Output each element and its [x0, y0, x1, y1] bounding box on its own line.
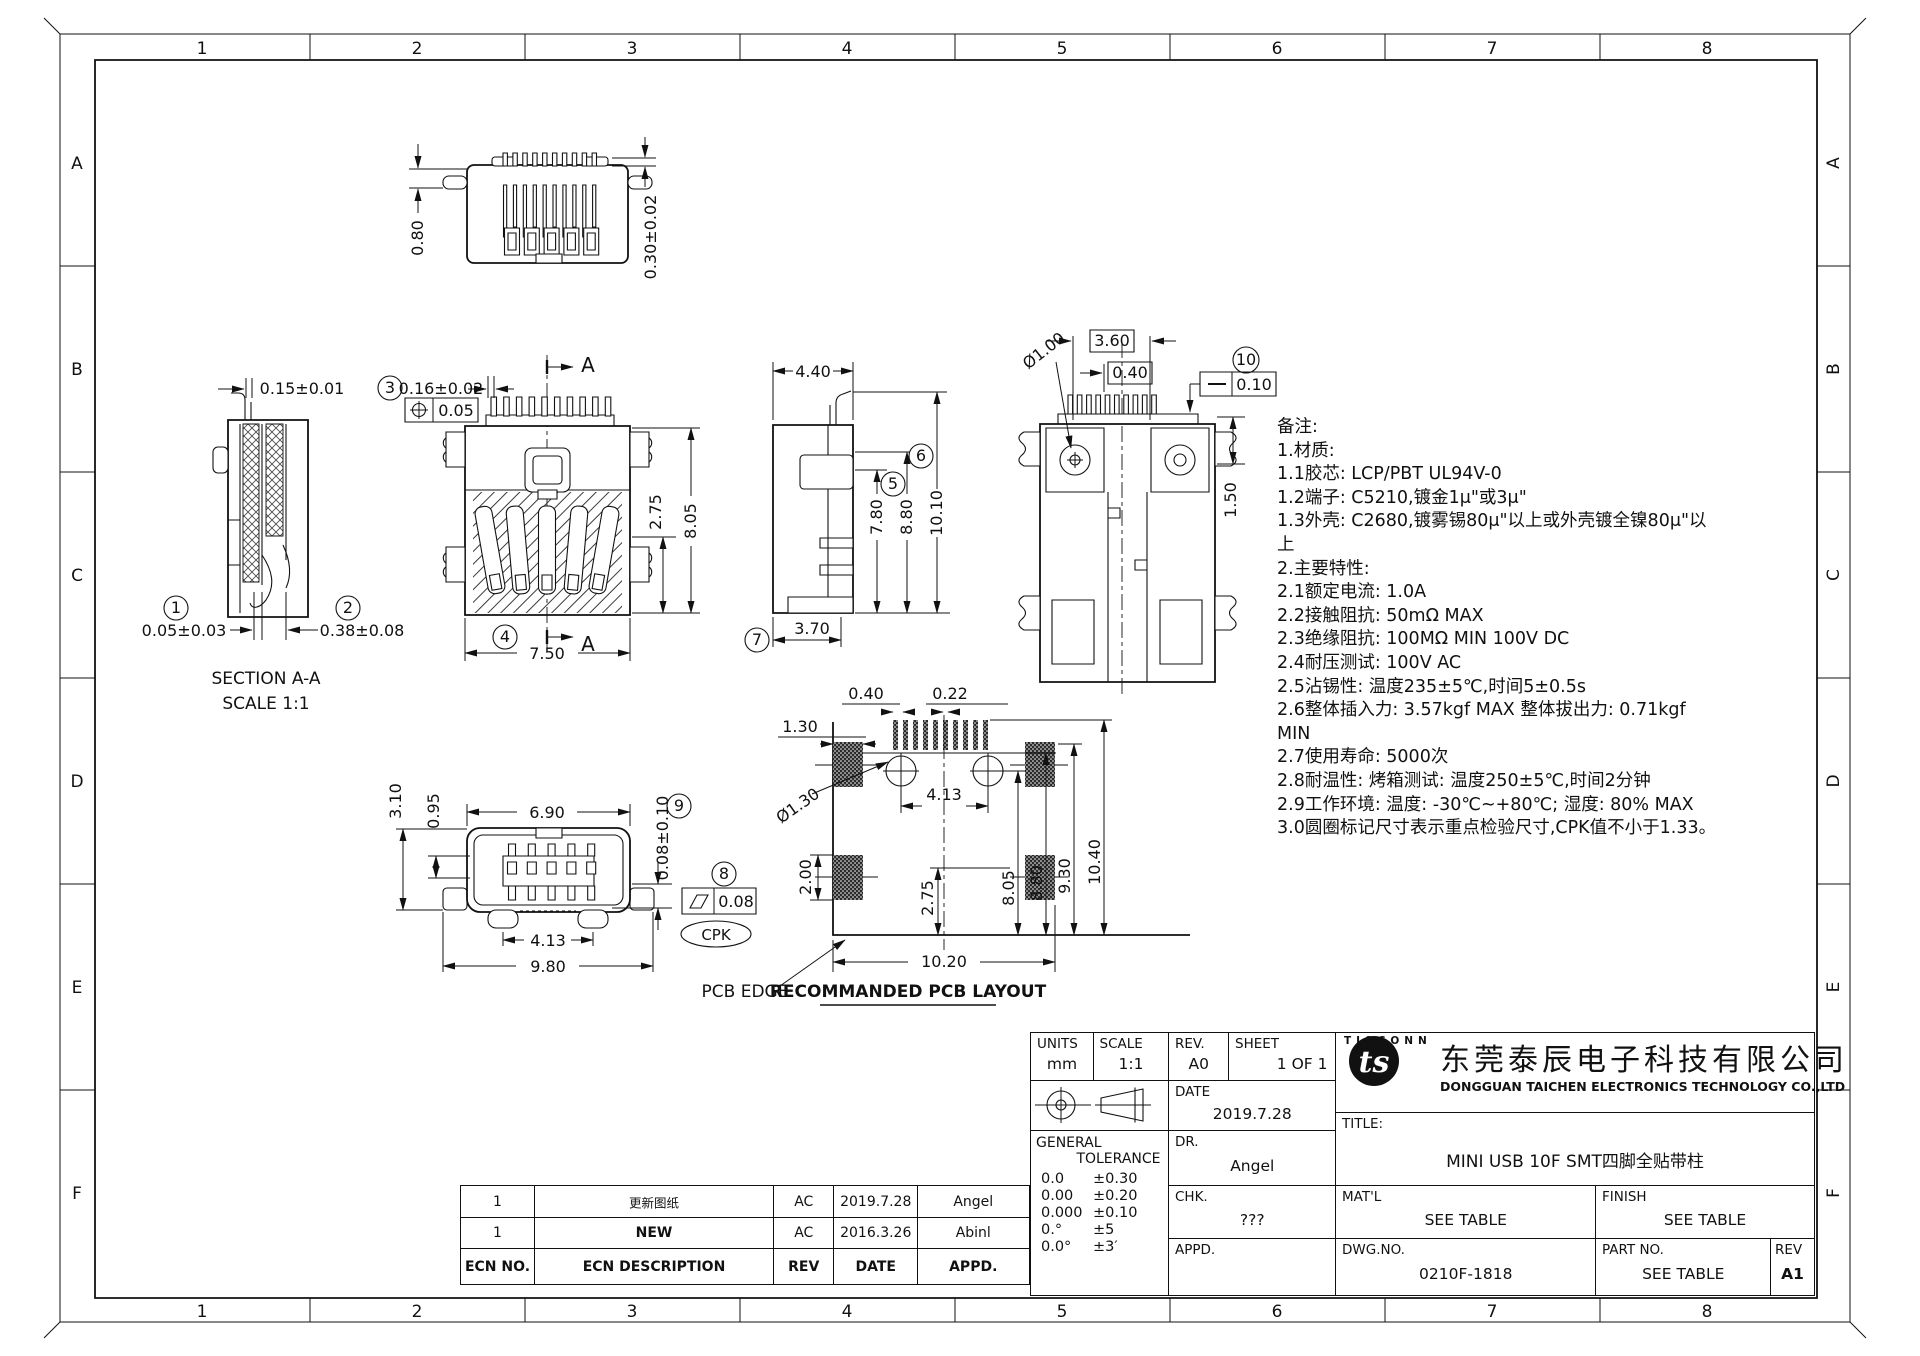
ecn-row-cell: 更新图纸 [534, 1185, 775, 1218]
view-side: 4.40 7.80 8.80 10.10 5 6 7 3.70 [745, 362, 950, 652]
dim-0-30: 0.30±0.02 [641, 195, 660, 280]
flatness-tolerance-frame: 0.08 [682, 888, 756, 914]
section-title: SECTION A-A [212, 669, 321, 689]
company-name-en: DONGGUAN TAICHEN ELECTRONICS TECHNOLOGY … [1440, 1079, 1848, 1094]
rev-current-cell: REV A1 [1770, 1238, 1815, 1296]
svg-text:8: 8 [719, 864, 729, 883]
date-cell: DATE 2019.7.28 [1168, 1080, 1337, 1132]
svg-text:3: 3 [627, 1302, 638, 1322]
basic-dim-3-60: 3.60 [1090, 330, 1134, 352]
note-line: 1.材质: [1277, 440, 1837, 464]
ecn-header-cell: ECN DESCRIPTION [534, 1248, 775, 1285]
material-cell: MAT'L SEE TABLE [1335, 1185, 1597, 1240]
projection-cell [1030, 1080, 1170, 1132]
view-rear-elevation: 0.80 0.30±0.02 [408, 137, 660, 279]
svg-text:1: 1 [197, 39, 208, 59]
dim-0-08: 0.08±0.10 [653, 796, 672, 881]
dim-0-05: 0.05±0.03 [142, 621, 227, 640]
position-symbol-icon [410, 401, 428, 419]
svg-text:F: F [72, 1184, 82, 1204]
basic-dim-0-40: 0.40 [1108, 362, 1152, 384]
note-line: 2.2接触阻抗: 50mΩ MAX [1277, 605, 1837, 629]
straightness-tolerance-frame: 0.10 [1200, 372, 1276, 396]
svg-text:9: 9 [674, 796, 684, 815]
section-arrow-label-bottom: A [581, 632, 595, 656]
dim-0-22: 0.22 [932, 684, 968, 703]
drawn-by-cell: DR. Angel [1168, 1130, 1337, 1187]
svg-text:ts: ts [1359, 1045, 1390, 1080]
note-line: 2.7使用寿命: 5000次 [1277, 746, 1837, 770]
cpk-mark: CPK [681, 921, 751, 947]
view-rear: 3.60 0.40 10 0.10 Ø1.00 1.50 [1019, 328, 1276, 695]
ecn-header-cell: ECN NO. [460, 1248, 535, 1285]
ecn-header-cell: REV [773, 1248, 835, 1285]
drawing-number: 0210F-1818 [1336, 1265, 1596, 1283]
svg-text:1: 1 [197, 1302, 208, 1322]
dim-3-70: 3.70 [794, 619, 830, 638]
note-line: 1.1胶芯: LCP/PBT UL94V-0 [1277, 463, 1837, 487]
svg-text:0.10: 0.10 [1236, 375, 1272, 394]
ecn-row-cell: Angel [917, 1185, 1030, 1218]
svg-text:8: 8 [1702, 39, 1713, 59]
svg-text:F: F [1824, 1188, 1844, 1198]
dim-4-13-pcb: 4.13 [926, 785, 962, 804]
svg-text:7: 7 [1487, 39, 1498, 59]
note-line: 2.1额定电流: 1.0A [1277, 581, 1837, 605]
svg-text:4: 4 [842, 39, 853, 59]
tolerance-row: 0.°±5 [1041, 1222, 1169, 1238]
drawing-title: MINI USB 10F SMT四脚全贴带柱 [1336, 1147, 1814, 1172]
dim-dia-1-30: Ø1.30 [773, 784, 823, 827]
dim-1-50: 1.50 [1221, 482, 1240, 518]
logo-cell: ts TISCONN 东莞泰辰电子科技有限公司 DONGGUAN TAICHEN… [1335, 1032, 1815, 1114]
pcb-layout-caption: RECOMMANDED PCB LAYOUT [770, 982, 1047, 1002]
note-line: 备注: [1277, 416, 1837, 440]
dim-0-15: 0.15±0.01 [260, 379, 345, 398]
balloon-5: 5 [881, 472, 905, 496]
ecn-row-cell: 1 [460, 1217, 535, 1250]
dim-4-40: 4.40 [795, 362, 831, 381]
balloon-10: 10 [1233, 347, 1259, 373]
svg-text:6: 6 [1272, 1302, 1283, 1322]
svg-text:C: C [71, 566, 83, 586]
dim-0-40-pcb: 0.40 [848, 684, 884, 703]
tolerance-row: 0.000±0.10 [1041, 1205, 1169, 1221]
note-line: MIN [1277, 723, 1837, 747]
note-line: 2.3绝缘阻抗: 100MΩ MIN 100V DC [1277, 628, 1837, 652]
svg-text:2: 2 [412, 39, 423, 59]
ecn-row-cell: 2016.3.26 [833, 1217, 919, 1250]
svg-text:E: E [72, 978, 83, 998]
svg-text:A: A [1824, 157, 1844, 169]
svg-text:D: D [70, 772, 83, 792]
svg-text:6: 6 [916, 446, 926, 465]
zone-labels-left: ABCDEF [70, 154, 83, 1204]
dim-0-80: 0.80 [408, 220, 427, 256]
dim-9-80: 9.80 [530, 957, 566, 976]
note-line: 2.6整体插入力: 3.57kgf MAX 整体拔出力: 0.71kgf [1277, 699, 1837, 723]
ecn-row-cell: AC [773, 1185, 835, 1218]
rev-value: A1 [1771, 1265, 1814, 1283]
dim-7-50: 7.50 [529, 644, 565, 663]
dim-10-10: 10.10 [927, 490, 946, 536]
svg-text:E: E [1824, 982, 1844, 993]
units-cell: UNITS mm [1030, 1032, 1094, 1081]
position-tolerance-frame: 0.05 [405, 398, 478, 422]
ecn-row-cell: NEW [534, 1217, 775, 1250]
dim-6-90: 6.90 [529, 803, 565, 822]
svg-text:5: 5 [1057, 1302, 1068, 1322]
dwg-no-cell: DWG.NO. 0210F-1818 [1335, 1238, 1597, 1296]
balloon-7: 7 [745, 628, 769, 652]
dim-0-95: 0.95 [424, 793, 443, 829]
ecn-row-cell: 1 [460, 1185, 535, 1218]
svg-text:8: 8 [1702, 1302, 1713, 1322]
note-line: 1.2端子: C5210,镀金1μ"或3μ" [1277, 487, 1837, 511]
company-logo: ts TISCONN [1344, 1035, 1454, 1047]
title-cell: TITLE: MINI USB 10F SMT四脚全贴带柱 [1335, 1112, 1815, 1187]
dim-2-00: 2.00 [796, 859, 815, 895]
tisconn-logo-icon: ts [1344, 1035, 1408, 1091]
part-no-cell: PART NO. SEE TABLE [1595, 1238, 1772, 1296]
balloon-1: 1 [164, 596, 188, 620]
svg-text:4: 4 [500, 627, 510, 646]
svg-text:6: 6 [1272, 39, 1283, 59]
svg-text:0.08: 0.08 [718, 892, 754, 911]
finish-cell: FINISH SEE TABLE [1595, 1185, 1815, 1240]
tolerance-row: 0.00±0.20 [1041, 1188, 1169, 1204]
dim-10-40: 10.40 [1085, 839, 1104, 885]
ecn-header-cell: DATE [833, 1248, 919, 1285]
note-line: 2.9工作环境: 温度: -30℃~+80℃; 湿度: 80% MAX [1277, 794, 1837, 818]
ecn-row-cell: AC [773, 1217, 835, 1250]
balloon-2: 2 [336, 596, 360, 620]
svg-text:B: B [1824, 363, 1844, 375]
dim-8-05-pcb: 8.05 [999, 870, 1018, 906]
dim-2-75-pcb: 2.75 [918, 880, 937, 916]
svg-text:4: 4 [842, 1302, 853, 1322]
svg-text:7: 7 [1487, 1302, 1498, 1322]
ecn-header-cell: APPD. [917, 1248, 1030, 1285]
section-arrow-label-top: A [581, 353, 595, 377]
svg-text:7: 7 [752, 630, 762, 649]
balloon-6: 6 [909, 444, 933, 468]
svg-text:2: 2 [343, 598, 353, 617]
drawing-sheet: 12345678 12345678 ABCDEF ABCDEF [0, 0, 1920, 1356]
svg-text:0.40: 0.40 [1112, 363, 1148, 382]
dim-10-20: 10.20 [921, 952, 967, 971]
view-mating-face: 3.10 0.95 6.90 0.08±0.10 9 4.13 9.80 8 0… [386, 783, 756, 976]
flatness-symbol-icon [690, 895, 708, 908]
section-scale: SCALE 1:1 [222, 694, 309, 714]
notes-block: 备注: 1.材质: 1.1胶芯: LCP/PBT UL94V-0 1.2端子: … [1277, 416, 1837, 841]
dim-8-80-pcb: 8.80 [1027, 865, 1046, 901]
svg-text:A: A [71, 154, 83, 174]
svg-text:B: B [71, 360, 83, 380]
dim-9-30: 9.30 [1055, 858, 1074, 894]
note-line: 2.4耐压测试: 100V AC [1277, 652, 1837, 676]
svg-text:3.60: 3.60 [1094, 331, 1130, 350]
dim-0-16: 0.16±0.02 [399, 379, 484, 398]
note-line: 上 [1277, 534, 1837, 558]
note-line: 2.主要特性: [1277, 558, 1837, 582]
general-tolerance-cell: GENERAL TOLERANCE 0.0±0.30 0.00±0.20 0.0… [1030, 1130, 1170, 1296]
projection-symbol-icon [1031, 1081, 1167, 1129]
scale-cell: SCALE 1:1 [1093, 1032, 1170, 1081]
svg-text:1: 1 [171, 598, 181, 617]
svg-text:0.05: 0.05 [438, 401, 474, 420]
company-name-cn: 东莞泰辰电子科技有限公司 [1440, 1035, 1848, 1079]
note-line: 3.0圆圈标记尺寸表示重点检验尺寸,CPK值不小于1.33。 [1277, 817, 1837, 841]
dim-8-05: 8.05 [681, 503, 700, 539]
balloon-8: 8 [712, 862, 736, 886]
ecn-row-cell: 2019.7.28 [833, 1185, 919, 1218]
dim-8-80: 8.80 [897, 499, 916, 535]
dim-2-75: 2.75 [646, 494, 665, 530]
note-line: 2.8耐温性: 烤箱测试: 温度250±5℃,时间2分钟 [1277, 770, 1837, 794]
dim-7-80: 7.80 [867, 499, 886, 535]
dim-4-13: 4.13 [530, 931, 566, 950]
checked-by-cell: CHK. ??? [1168, 1185, 1337, 1240]
dim-1-30: 1.30 [782, 717, 818, 736]
note-line: 1.3外壳: C2680,镀雾锡80μ"以上或外壳镀全镍80μ"以 [1277, 510, 1837, 534]
view-section-aa: 0.15±0.01 1 2 0.05±0.03 0.38±0.08 SECTIO… [142, 378, 405, 714]
svg-text:2: 2 [412, 1302, 423, 1322]
tolerance-row: 0.0±0.30 [1041, 1171, 1169, 1187]
dim-dia-1-00: Ø1.00 [1019, 328, 1069, 373]
balloon-4: 4 [493, 625, 517, 649]
svg-text:10: 10 [1236, 350, 1256, 369]
dim-3-10: 3.10 [386, 783, 405, 819]
svg-text:CPK: CPK [701, 926, 732, 944]
svg-text:5: 5 [888, 474, 898, 493]
view-pcb-layout: 1.30 0.40 0.22 Ø1.30 4.13 2.00 2.75 8.05… [702, 684, 1190, 1005]
approved-by-cell: APPD. [1168, 1238, 1337, 1296]
sheet-cell: SHEET 1 OF 1 [1228, 1032, 1337, 1081]
note-line: 2.5沾锡性: 温度235±5℃,时间5±0.5s [1277, 676, 1837, 700]
svg-text:5: 5 [1057, 39, 1068, 59]
dim-0-38: 0.38±0.08 [320, 621, 405, 640]
view-front: A A 3 0.16±0.02 0.05 4 7.50 2.75 [378, 353, 700, 663]
ecn-row-cell: Abinl [917, 1217, 1030, 1250]
svg-text:3: 3 [385, 378, 395, 397]
tolerance-row: 0.0°±3′ [1041, 1239, 1169, 1255]
svg-text:3: 3 [627, 39, 638, 59]
rev-cell: REV. A0 [1168, 1032, 1230, 1081]
